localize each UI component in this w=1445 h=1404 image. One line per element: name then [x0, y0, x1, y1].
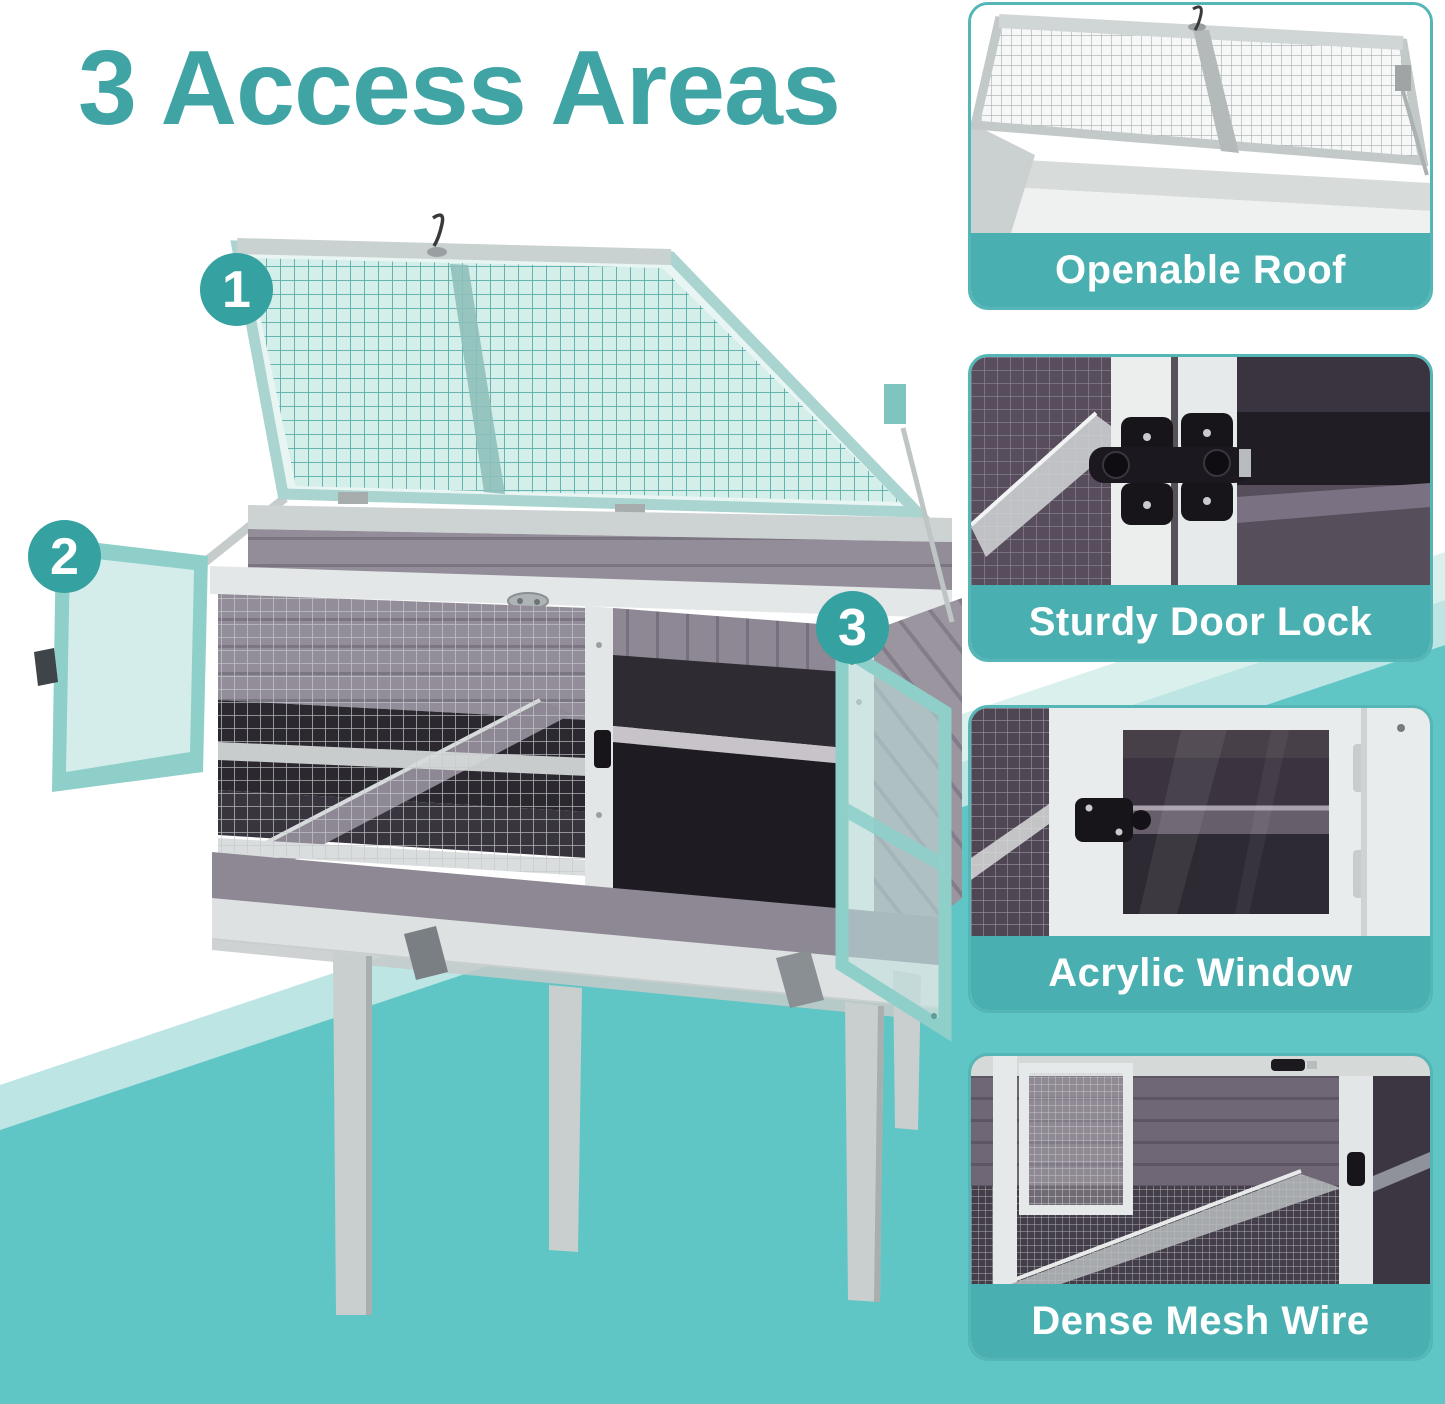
infographic-canvas: 3 Access Areas 1 2 3 [0, 0, 1445, 1404]
right-door-open [842, 648, 945, 1030]
lid-hinge-icon [338, 492, 368, 504]
feature-card-dense-mesh: Dense Mesh Wire [968, 1053, 1433, 1361]
mesh-door-frame [1024, 1068, 1128, 1210]
marker-1-number: 1 [222, 260, 251, 320]
page-title: 3 Access Areas [78, 30, 958, 147]
lid-latch-hook-icon [433, 215, 443, 246]
acrylic-window-door-icon [971, 708, 1430, 936]
feature-card-acrylic-window: Acrylic Window [968, 705, 1433, 1013]
roof-lid-open [237, 215, 917, 516]
feature-label: Acrylic Window [971, 936, 1430, 1010]
feature-card-openable-roof: Openable Roof [968, 2, 1433, 310]
marker-3-number: 3 [838, 598, 867, 658]
marker-3-right-door: 3 [816, 591, 889, 664]
mesh-wire-floor-icon [971, 1056, 1430, 1284]
front-mesh-panel [218, 594, 588, 876]
marker-2-number: 2 [50, 527, 79, 587]
dense-mesh-photo [971, 1056, 1430, 1284]
lid-bracket [884, 384, 906, 424]
marker-1-roof: 1 [200, 253, 273, 326]
door-latch-icon [594, 730, 611, 768]
acrylic-window-photo [971, 708, 1430, 936]
feature-card-door-lock: Sturdy Door Lock [968, 354, 1433, 662]
door-lock-photo [971, 357, 1430, 585]
left-compartment [218, 594, 588, 876]
feature-label: Dense Mesh Wire [971, 1284, 1430, 1358]
roof-mesh-lid-icon [971, 5, 1430, 233]
marker-2-left-door: 2 [28, 520, 101, 593]
feature-label: Openable Roof [971, 233, 1430, 307]
door-lock-latch-icon [971, 357, 1430, 585]
feature-label: Sturdy Door Lock [971, 585, 1430, 659]
door-latch-icon [1347, 1152, 1365, 1186]
openable-roof-photo [971, 5, 1430, 233]
door-handle-icon [34, 648, 58, 686]
